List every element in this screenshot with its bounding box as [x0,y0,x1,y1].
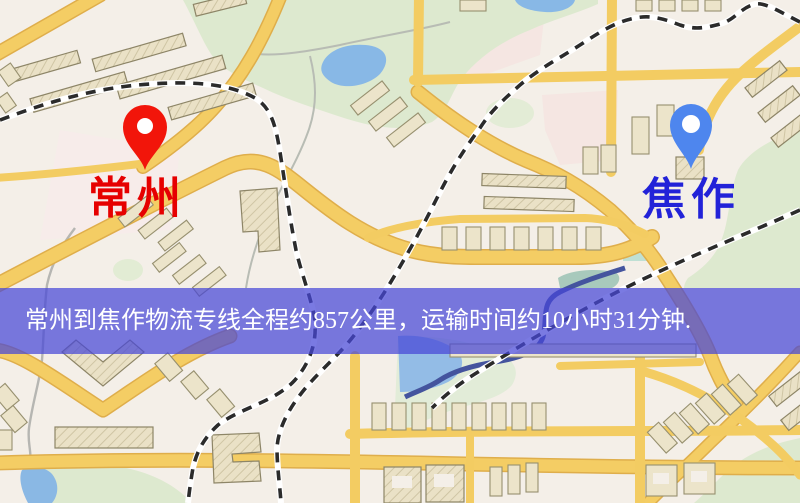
destination-pin-shape [670,104,712,169]
destination-label: 焦作 [642,178,740,222]
destination-pin-icon [669,103,713,169]
map-view: 常州 焦作 常州到焦作物流专线全程约857公里，运输时间约10小时31分钟. [0,0,800,503]
origin-label: 常州 [88,177,186,221]
route-info-text: 常州到焦作物流专线全程约857公里，运输时间约10小时31分钟. [25,308,691,334]
origin-pin-icon [119,101,171,171]
map-background [0,0,800,503]
origin-pin-shape [123,105,167,170]
route-info-banner: 常州到焦作物流专线全程约857公里，运输时间约10小时31分钟. [0,288,800,354]
